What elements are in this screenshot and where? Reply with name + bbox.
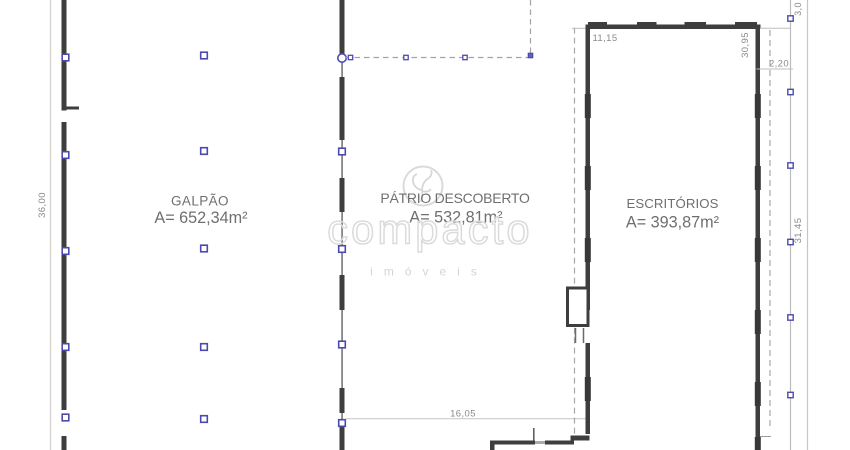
svg-text:A= 393,87m²: A= 393,87m² xyxy=(626,214,720,232)
svg-text:imóveis: imóveis xyxy=(370,265,488,279)
svg-text:11,15: 11,15 xyxy=(592,33,617,44)
svg-text:30,95: 30,95 xyxy=(740,32,751,58)
svg-text:36,00: 36,00 xyxy=(37,192,48,218)
svg-text:3,0: 3,0 xyxy=(793,2,803,16)
svg-text:PÁTRIO DESCOBERTO: PÁTRIO DESCOBERTO xyxy=(380,190,530,206)
svg-text:GALPÃO: GALPÃO xyxy=(171,194,229,209)
svg-text:A= 652,34m²: A= 652,34m² xyxy=(154,209,248,227)
svg-text:31,45: 31,45 xyxy=(793,218,804,244)
svg-text:2,20: 2,20 xyxy=(769,59,789,70)
svg-text:compacto: compacto xyxy=(327,206,533,253)
svg-text:16,05: 16,05 xyxy=(450,409,476,420)
svg-text:ESCRITÓRIOS: ESCRITÓRIOS xyxy=(627,196,719,211)
